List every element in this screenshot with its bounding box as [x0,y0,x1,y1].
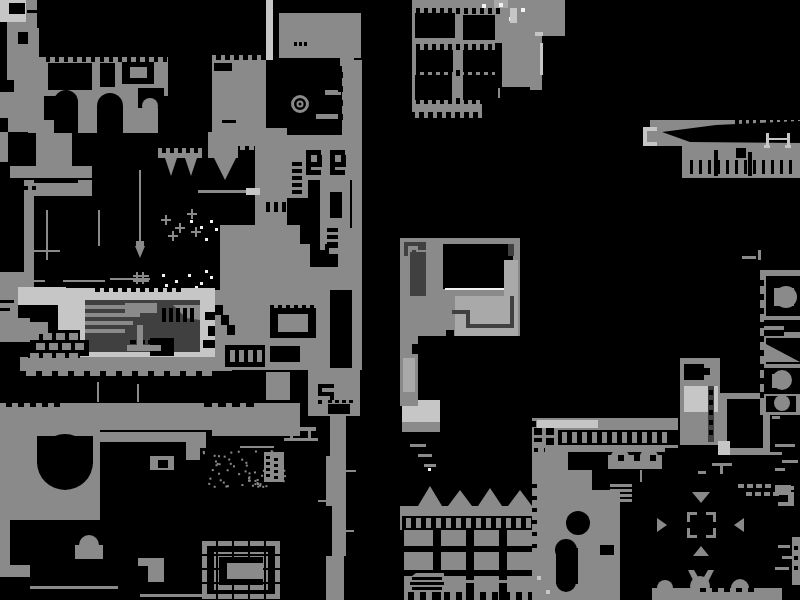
map-screen [0,0,800,600]
game-map-canvas [0,0,800,600]
